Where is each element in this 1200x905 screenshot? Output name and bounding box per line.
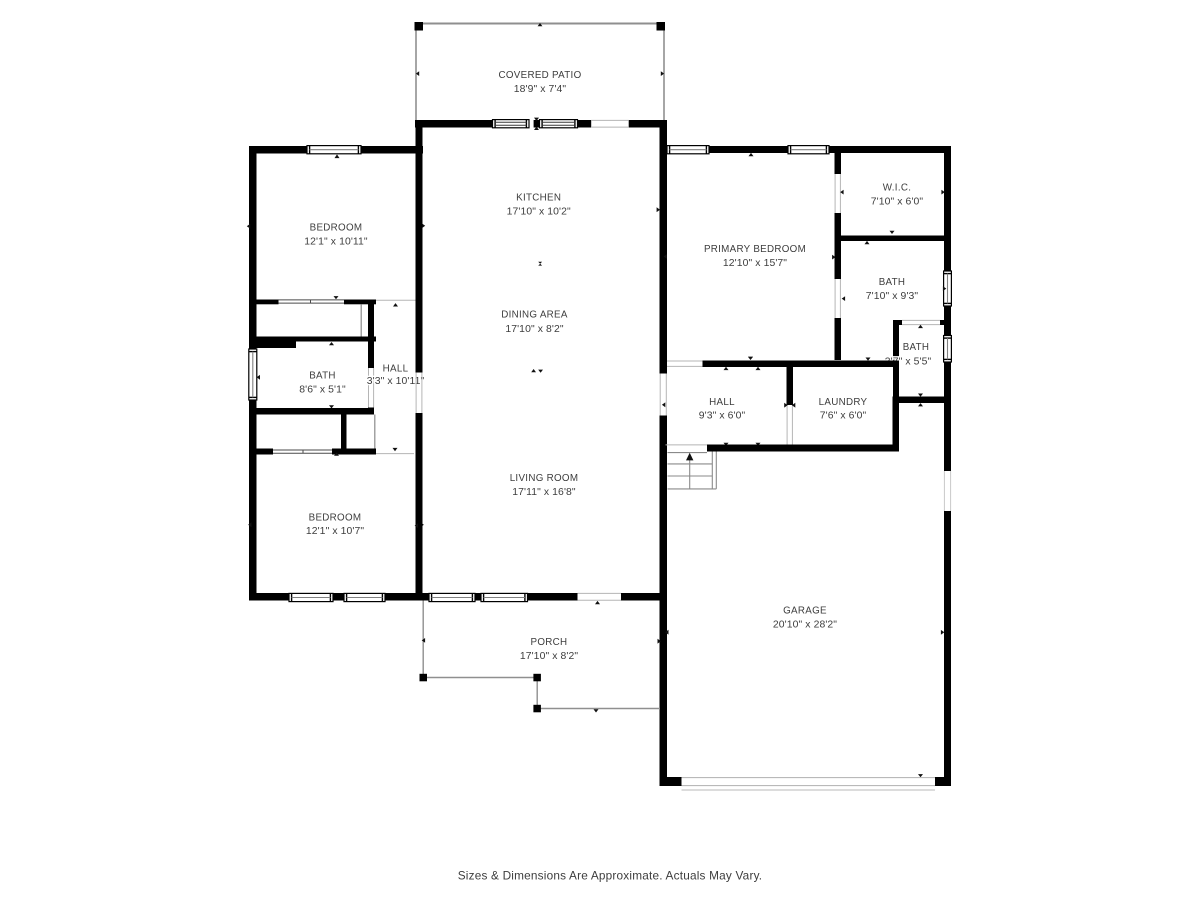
svg-text:17'10" x 10'2": 17'10" x 10'2" [507,207,571,218]
svg-text:LAUNDRY: LAUNDRY [819,397,868,408]
svg-text:17'11" x 16'8": 17'11" x 16'8" [512,487,576,498]
svg-text:7'6" x 6'0": 7'6" x 6'0" [820,410,867,421]
svg-text:BEDROOM: BEDROOM [310,222,363,233]
svg-text:Sizes & Dimensions Are Approxi: Sizes & Dimensions Are Approximate. Actu… [458,868,763,882]
svg-text:18'9" x 7'4": 18'9" x 7'4" [514,84,567,95]
svg-text:KITCHEN: KITCHEN [516,192,561,203]
svg-text:12'1" x 10'7": 12'1" x 10'7" [306,526,364,537]
svg-text:8'6" x 5'1": 8'6" x 5'1" [299,384,346,395]
svg-text:LIVING ROOM: LIVING ROOM [510,473,579,484]
svg-text:PRIMARY BEDROOM: PRIMARY BEDROOM [704,244,806,255]
svg-text:HALL: HALL [709,397,735,408]
svg-text:12'10" x 15'7": 12'10" x 15'7" [723,258,787,269]
svg-text:COVERED PATIO: COVERED PATIO [498,70,581,81]
svg-text:BEDROOM: BEDROOM [309,512,362,523]
svg-text:7'10" x 6'0": 7'10" x 6'0" [871,197,924,208]
svg-text:BATH: BATH [879,277,906,288]
svg-text:17'10" x 8'2": 17'10" x 8'2" [505,324,563,335]
svg-text:W.I.C.: W.I.C. [883,183,911,194]
svg-text:DINING AREA: DINING AREA [501,310,568,321]
svg-text:BATH: BATH [309,370,336,381]
svg-text:20'10" x 28'2": 20'10" x 28'2" [773,619,837,630]
svg-text:GARAGE: GARAGE [783,606,827,617]
svg-text:12'1" x 10'11": 12'1" x 10'11" [304,236,368,247]
svg-text:HALL: HALL [383,364,409,375]
svg-text:17'10" x 8'2": 17'10" x 8'2" [520,651,578,662]
svg-text:7'10" x 9'3": 7'10" x 9'3" [866,291,919,302]
svg-text:9'3" x 6'0": 9'3" x 6'0" [699,410,746,421]
svg-text:PORCH: PORCH [531,637,568,648]
svg-text:BATH: BATH [903,342,930,353]
